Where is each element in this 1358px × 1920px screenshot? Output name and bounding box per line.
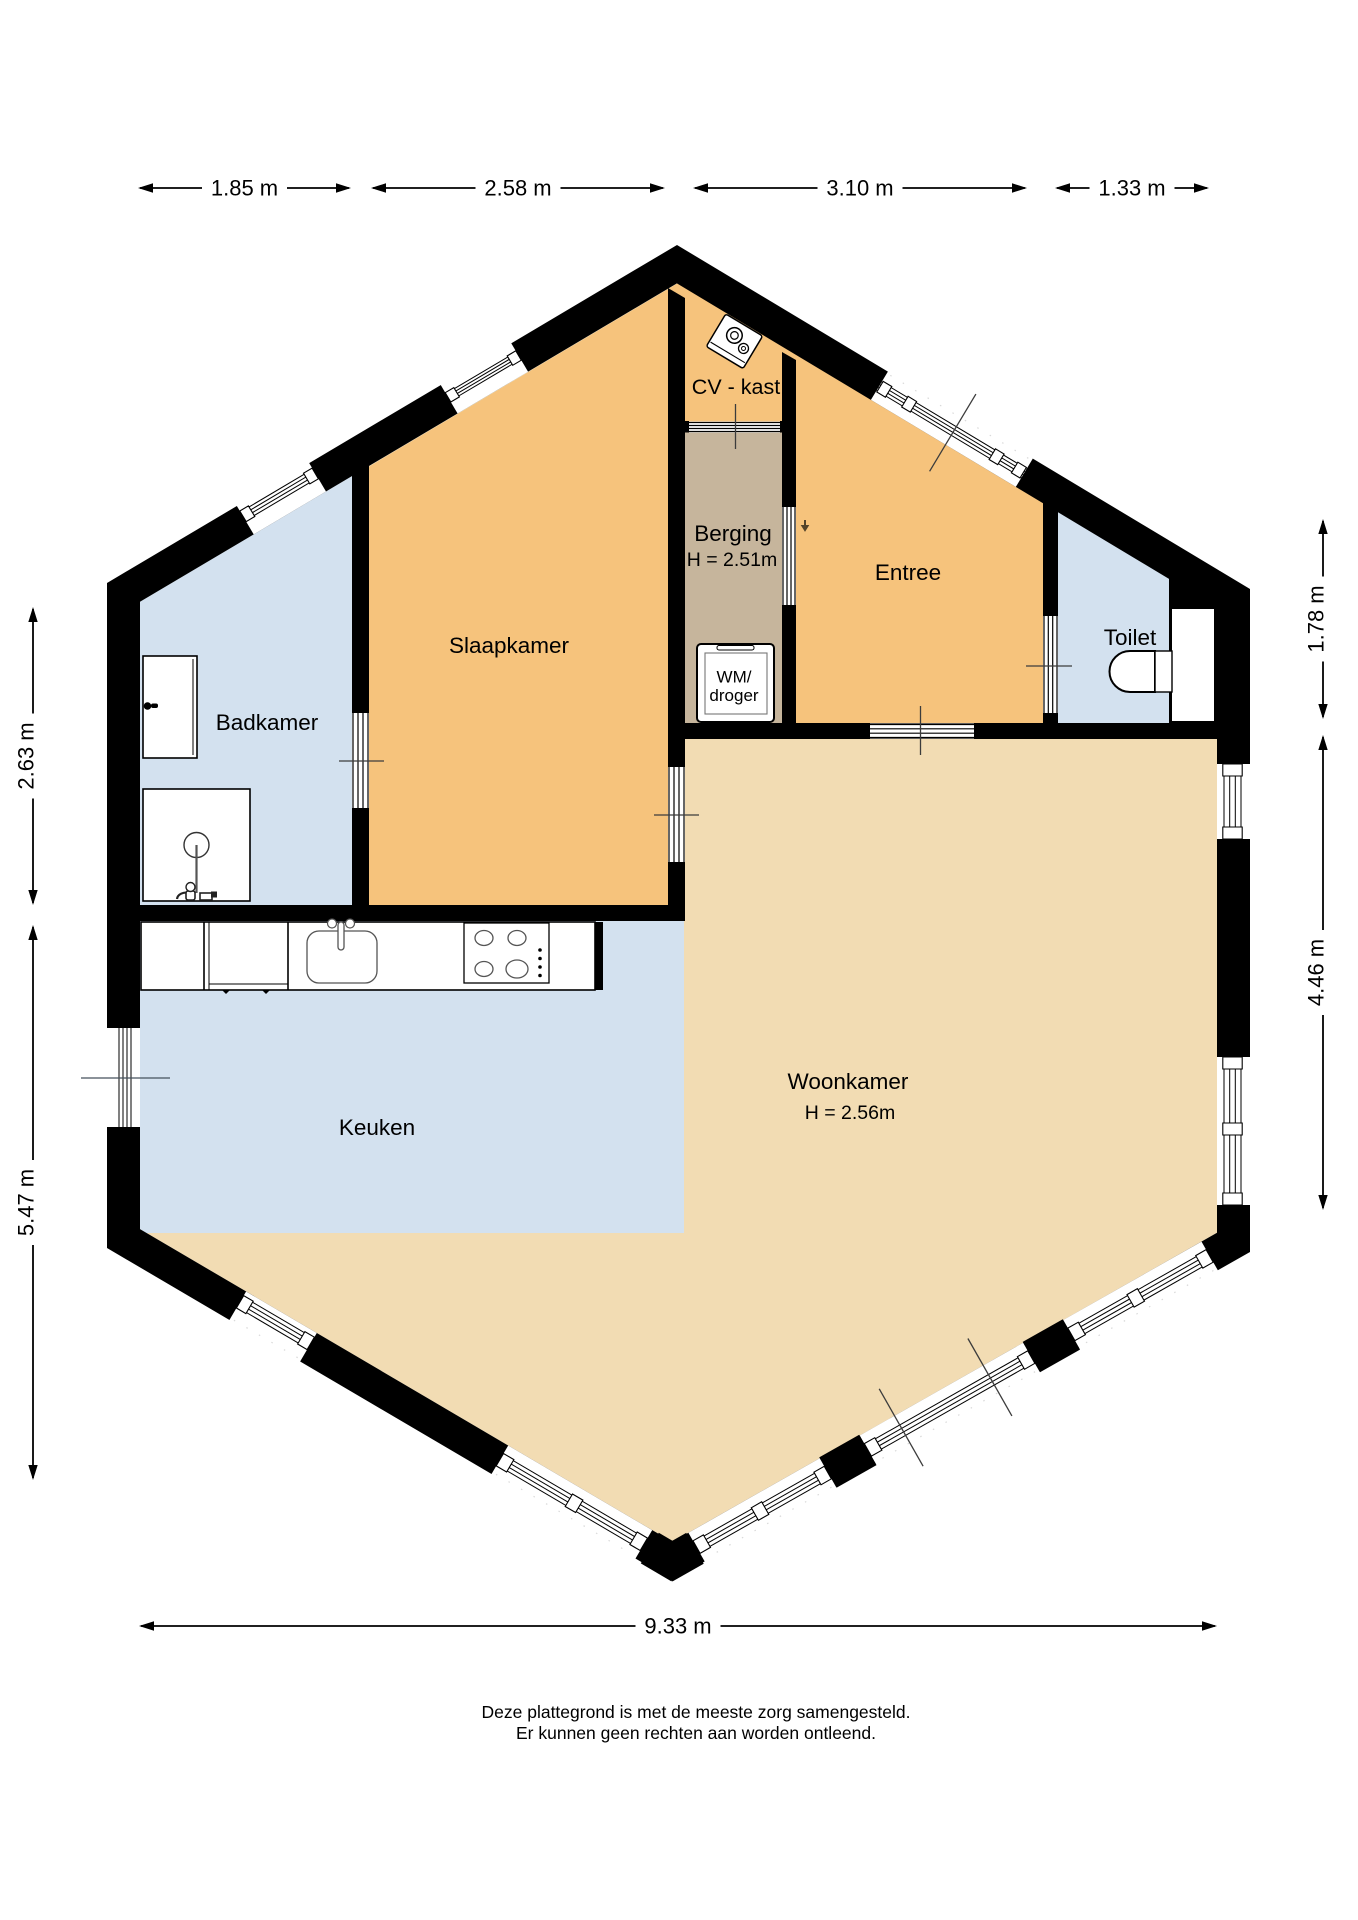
svg-text:1.78 m: 1.78 m	[1304, 585, 1329, 652]
svg-text:droger: droger	[709, 686, 758, 705]
svg-text:Entree: Entree	[875, 560, 941, 585]
svg-text:1.33 m: 1.33 m	[1098, 176, 1165, 201]
svg-text:9.33 m: 9.33 m	[644, 1614, 711, 1639]
svg-text:2.63 m: 2.63 m	[14, 722, 39, 789]
svg-text:Er kunnen geen rechten aan wor: Er kunnen geen rechten aan worden ontlee…	[516, 1723, 876, 1743]
svg-text:5.47 m: 5.47 m	[14, 1169, 39, 1236]
svg-text:Keuken: Keuken	[339, 1115, 415, 1140]
svg-text:WM/: WM/	[717, 668, 752, 687]
svg-text:Deze plattegrond is met de mee: Deze plattegrond is met de meeste zorg s…	[482, 1702, 911, 1722]
svg-text:H = 2.51m: H = 2.51m	[687, 549, 778, 571]
svg-text:Toilet: Toilet	[1104, 625, 1157, 650]
svg-text:CV - kast: CV - kast	[692, 375, 780, 399]
svg-text:Badkamer: Badkamer	[216, 710, 319, 735]
svg-text:Woonkamer: Woonkamer	[788, 1069, 909, 1094]
svg-text:H = 2.56m: H = 2.56m	[805, 1102, 896, 1124]
svg-text:2.58 m: 2.58 m	[484, 176, 551, 201]
svg-text:Slaapkamer: Slaapkamer	[449, 633, 570, 658]
svg-text:3.10 m: 3.10 m	[826, 176, 893, 201]
svg-text:1.85 m: 1.85 m	[211, 176, 278, 201]
svg-text:Berging: Berging	[694, 521, 772, 546]
svg-text:4.46 m: 4.46 m	[1304, 939, 1329, 1006]
